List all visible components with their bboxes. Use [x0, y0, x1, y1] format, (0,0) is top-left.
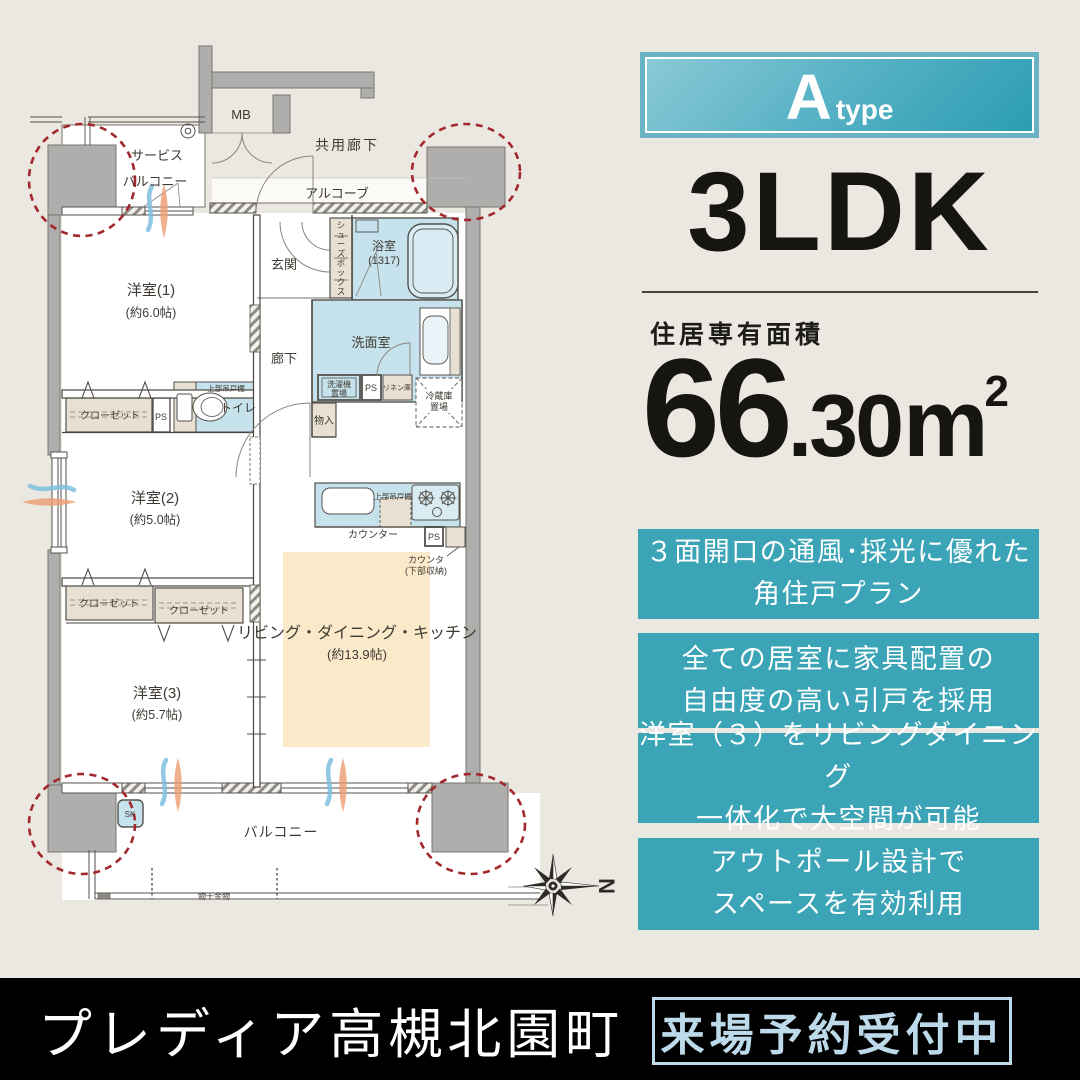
label-bath: 浴室 [372, 238, 396, 253]
feature-1-line-2: 角住戸プラン [753, 574, 924, 616]
floor-plan: N MB 共用廊下 アルコーブ サービス バルコニー 玄関 シューズボックス 浴… [0, 0, 648, 978]
label-counter-note-1: カウンタ [408, 555, 444, 565]
label-counter: カウンター [348, 529, 398, 541]
label-room1-size: (約6.0帖) [126, 305, 177, 320]
label-fridge-2: 置場 [430, 401, 448, 412]
label-toilet: トイレ [220, 401, 256, 415]
label-closet-y3b: クローゼット [169, 605, 229, 617]
flyer-poster: N MB 共用廊下 アルコーブ サービス バルコニー 玄関 シューズボックス 浴… [0, 0, 1080, 1080]
label-fridge-1: 冷蔵庫 [425, 390, 452, 401]
label-kitchen-shelf: 上部吊戸棚 [374, 491, 412, 501]
label-monoire: 物入 [314, 414, 334, 427]
area-unit: m [903, 369, 988, 479]
feature-4-line-1: アウトポール設計で [710, 842, 967, 884]
label-room3: 洋室(3) [133, 685, 181, 702]
area-exponent: 2 [984, 367, 1008, 417]
feature-box-2: 全ての居室に家具配置の 自由度の高い引戸を採用 [638, 633, 1039, 728]
label-washer-2: 置場 [331, 388, 347, 398]
label-closet-y2: クローゼット [80, 410, 140, 422]
type-badge: A type [640, 52, 1039, 138]
label-ldk-size: (約13.9帖) [327, 647, 387, 662]
feature-3-line-1: 洋室（３）をリビングダイニング [638, 715, 1039, 799]
label-shoes-box: シューズボックス [337, 220, 346, 297]
type-letter: A [786, 59, 832, 135]
area-whole: 66 [642, 338, 788, 478]
feature-4-line-2: スペースを有効利用 [712, 884, 965, 926]
area-frac: .30 [788, 375, 901, 477]
label-room1: 洋室(1) [127, 282, 175, 299]
label-counter-note-2: (下部収納) [405, 565, 447, 576]
label-mb: MB [231, 107, 251, 122]
feature-3-line-2: 一体化で大空間が可能 [696, 799, 981, 841]
label-common-corridor: 共用廊下 [315, 137, 379, 153]
label-alcove: アルコーブ [305, 186, 369, 201]
label-bath-size: (1317) [368, 255, 400, 267]
reservation-badge: 来場予約受付中 [652, 997, 1012, 1065]
feature-1-line-1: ３面開口の通風･採光に優れた [646, 532, 1032, 574]
area-value: 66 .30 m 2 [642, 338, 1042, 479]
feature-box-1: ３面開口の通風･採光に優れた 角住戸プラン [638, 529, 1039, 619]
label-toilet-shelf: 上部吊戸棚 [207, 383, 245, 393]
type-word: type [836, 94, 894, 126]
label-room2: 洋室(2) [131, 490, 179, 507]
label-linen: リネン庫 [383, 383, 411, 392]
divider-line [642, 291, 1038, 293]
label-genkan: 玄関 [271, 257, 297, 272]
label-monohoshi: 物干金物 [198, 891, 230, 901]
label-closet-y3a: クローゼット [79, 598, 139, 610]
label-ps1: PS [365, 383, 377, 393]
label-washer-1: 洗濯機 [327, 379, 351, 389]
label-balcony: バルコニー [244, 824, 319, 840]
compass-north-label: N [594, 878, 619, 894]
label-service-balcony-1: サービス [131, 148, 183, 163]
label-ps2: PS [155, 412, 167, 422]
label-sk: SK [125, 810, 136, 819]
type-badge-inner: A type [645, 57, 1034, 133]
label-ldk: リビング・ダイニング・キッチン [237, 624, 477, 642]
label-service-balcony-2: バルコニー [123, 174, 188, 189]
feature-box-3: 洋室（３）をリビングダイニング 一体化で大空間が可能 [638, 733, 1039, 823]
footer-bar: プレディア高槻北園町 来場予約受付中 [0, 978, 1080, 1080]
label-room2-size: (約5.0帖) [130, 512, 181, 527]
label-washroom: 洗面室 [351, 335, 390, 350]
label-room3-size: (約5.7帖) [132, 707, 183, 722]
layout-title: 3LDK [640, 156, 1039, 268]
label-ps3: PS [428, 532, 440, 542]
property-name: プレディア高槻北園町 [38, 978, 624, 1080]
label-corridor: 廊下 [271, 351, 297, 366]
feature-2-line-1: 全ての居室に家具配置の [682, 639, 996, 681]
feature-box-4: アウトポール設計で スペースを有効利用 [638, 838, 1039, 930]
